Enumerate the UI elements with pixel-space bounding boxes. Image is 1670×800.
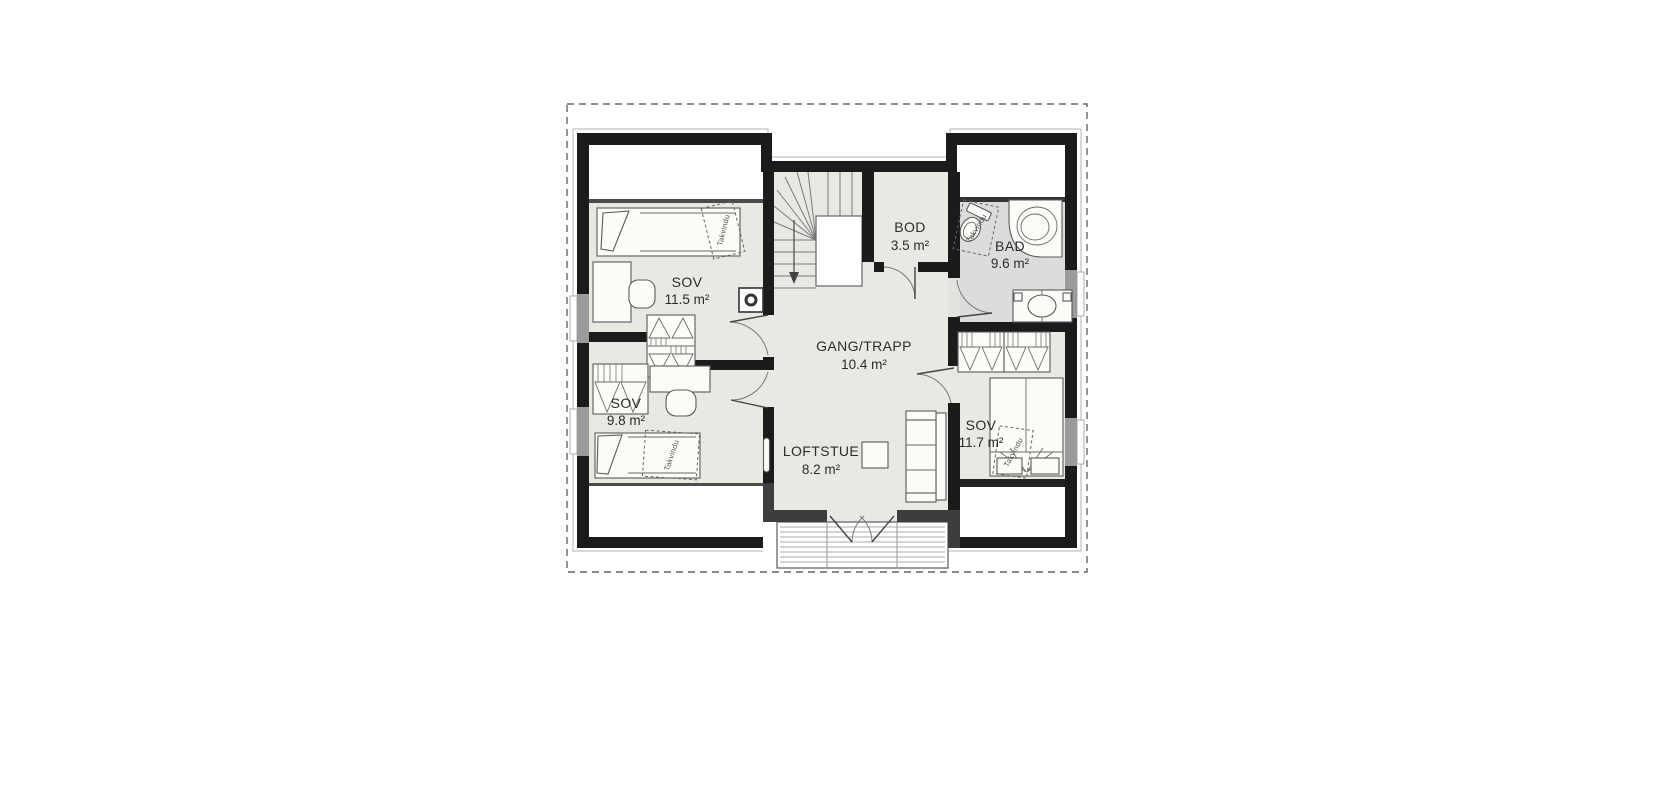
room-area-sov-3: 11.7 m² bbox=[959, 435, 1004, 450]
room-area-sov-1: 11.5 m² bbox=[665, 292, 710, 307]
window-left-2 bbox=[577, 407, 589, 456]
bed-icon bbox=[990, 378, 1063, 476]
balcony bbox=[777, 522, 948, 568]
door-threshold bbox=[827, 510, 897, 522]
door-threshold bbox=[763, 315, 774, 357]
room-label-gang-trapp: GANG/TRAPP bbox=[816, 338, 912, 354]
door-threshold bbox=[763, 370, 774, 407]
sofa-icon bbox=[906, 411, 946, 502]
stair-void bbox=[816, 216, 862, 286]
chimney-icon bbox=[739, 288, 763, 312]
room-label-bod: BOD bbox=[894, 219, 926, 235]
radiator-icon bbox=[764, 438, 770, 472]
room-label-sov-2: SOV bbox=[611, 395, 642, 411]
room-area-bad: 9.6 m² bbox=[991, 256, 1030, 271]
room-area-loftstue: 8.2 m² bbox=[802, 462, 841, 477]
room-label-sov-1: SOV bbox=[672, 274, 703, 290]
window-sill bbox=[1077, 420, 1084, 464]
table-icon bbox=[862, 442, 888, 468]
floor-plan-drawing: Takvindu Takvindu Takvindu Takvindu SOV … bbox=[0, 0, 1670, 800]
window-sill bbox=[570, 296, 577, 341]
washbasin-icon bbox=[1013, 290, 1072, 322]
bed-icon bbox=[595, 433, 700, 478]
room-area-bod: 3.5 m² bbox=[891, 238, 930, 253]
room-label-loftstue: LOFTSTUE bbox=[783, 443, 859, 459]
floor-plan-page: Takvindu Takvindu Takvindu Takvindu SOV … bbox=[0, 0, 1670, 800]
room-area-sov-2: 9.8 m² bbox=[607, 413, 646, 428]
room-label-bad: BAD bbox=[995, 238, 1025, 254]
door-threshold bbox=[948, 278, 960, 317]
wardrobe-icon bbox=[1004, 332, 1050, 372]
wardrobe-icon bbox=[958, 332, 1004, 372]
window-sill bbox=[1077, 272, 1084, 316]
room-label-sov-3: SOV bbox=[966, 417, 997, 433]
window-right-2 bbox=[1065, 418, 1077, 466]
window-sill bbox=[570, 409, 577, 454]
room-area-gang-trapp: 10.4 m² bbox=[841, 357, 887, 372]
window-left-1 bbox=[577, 294, 589, 343]
